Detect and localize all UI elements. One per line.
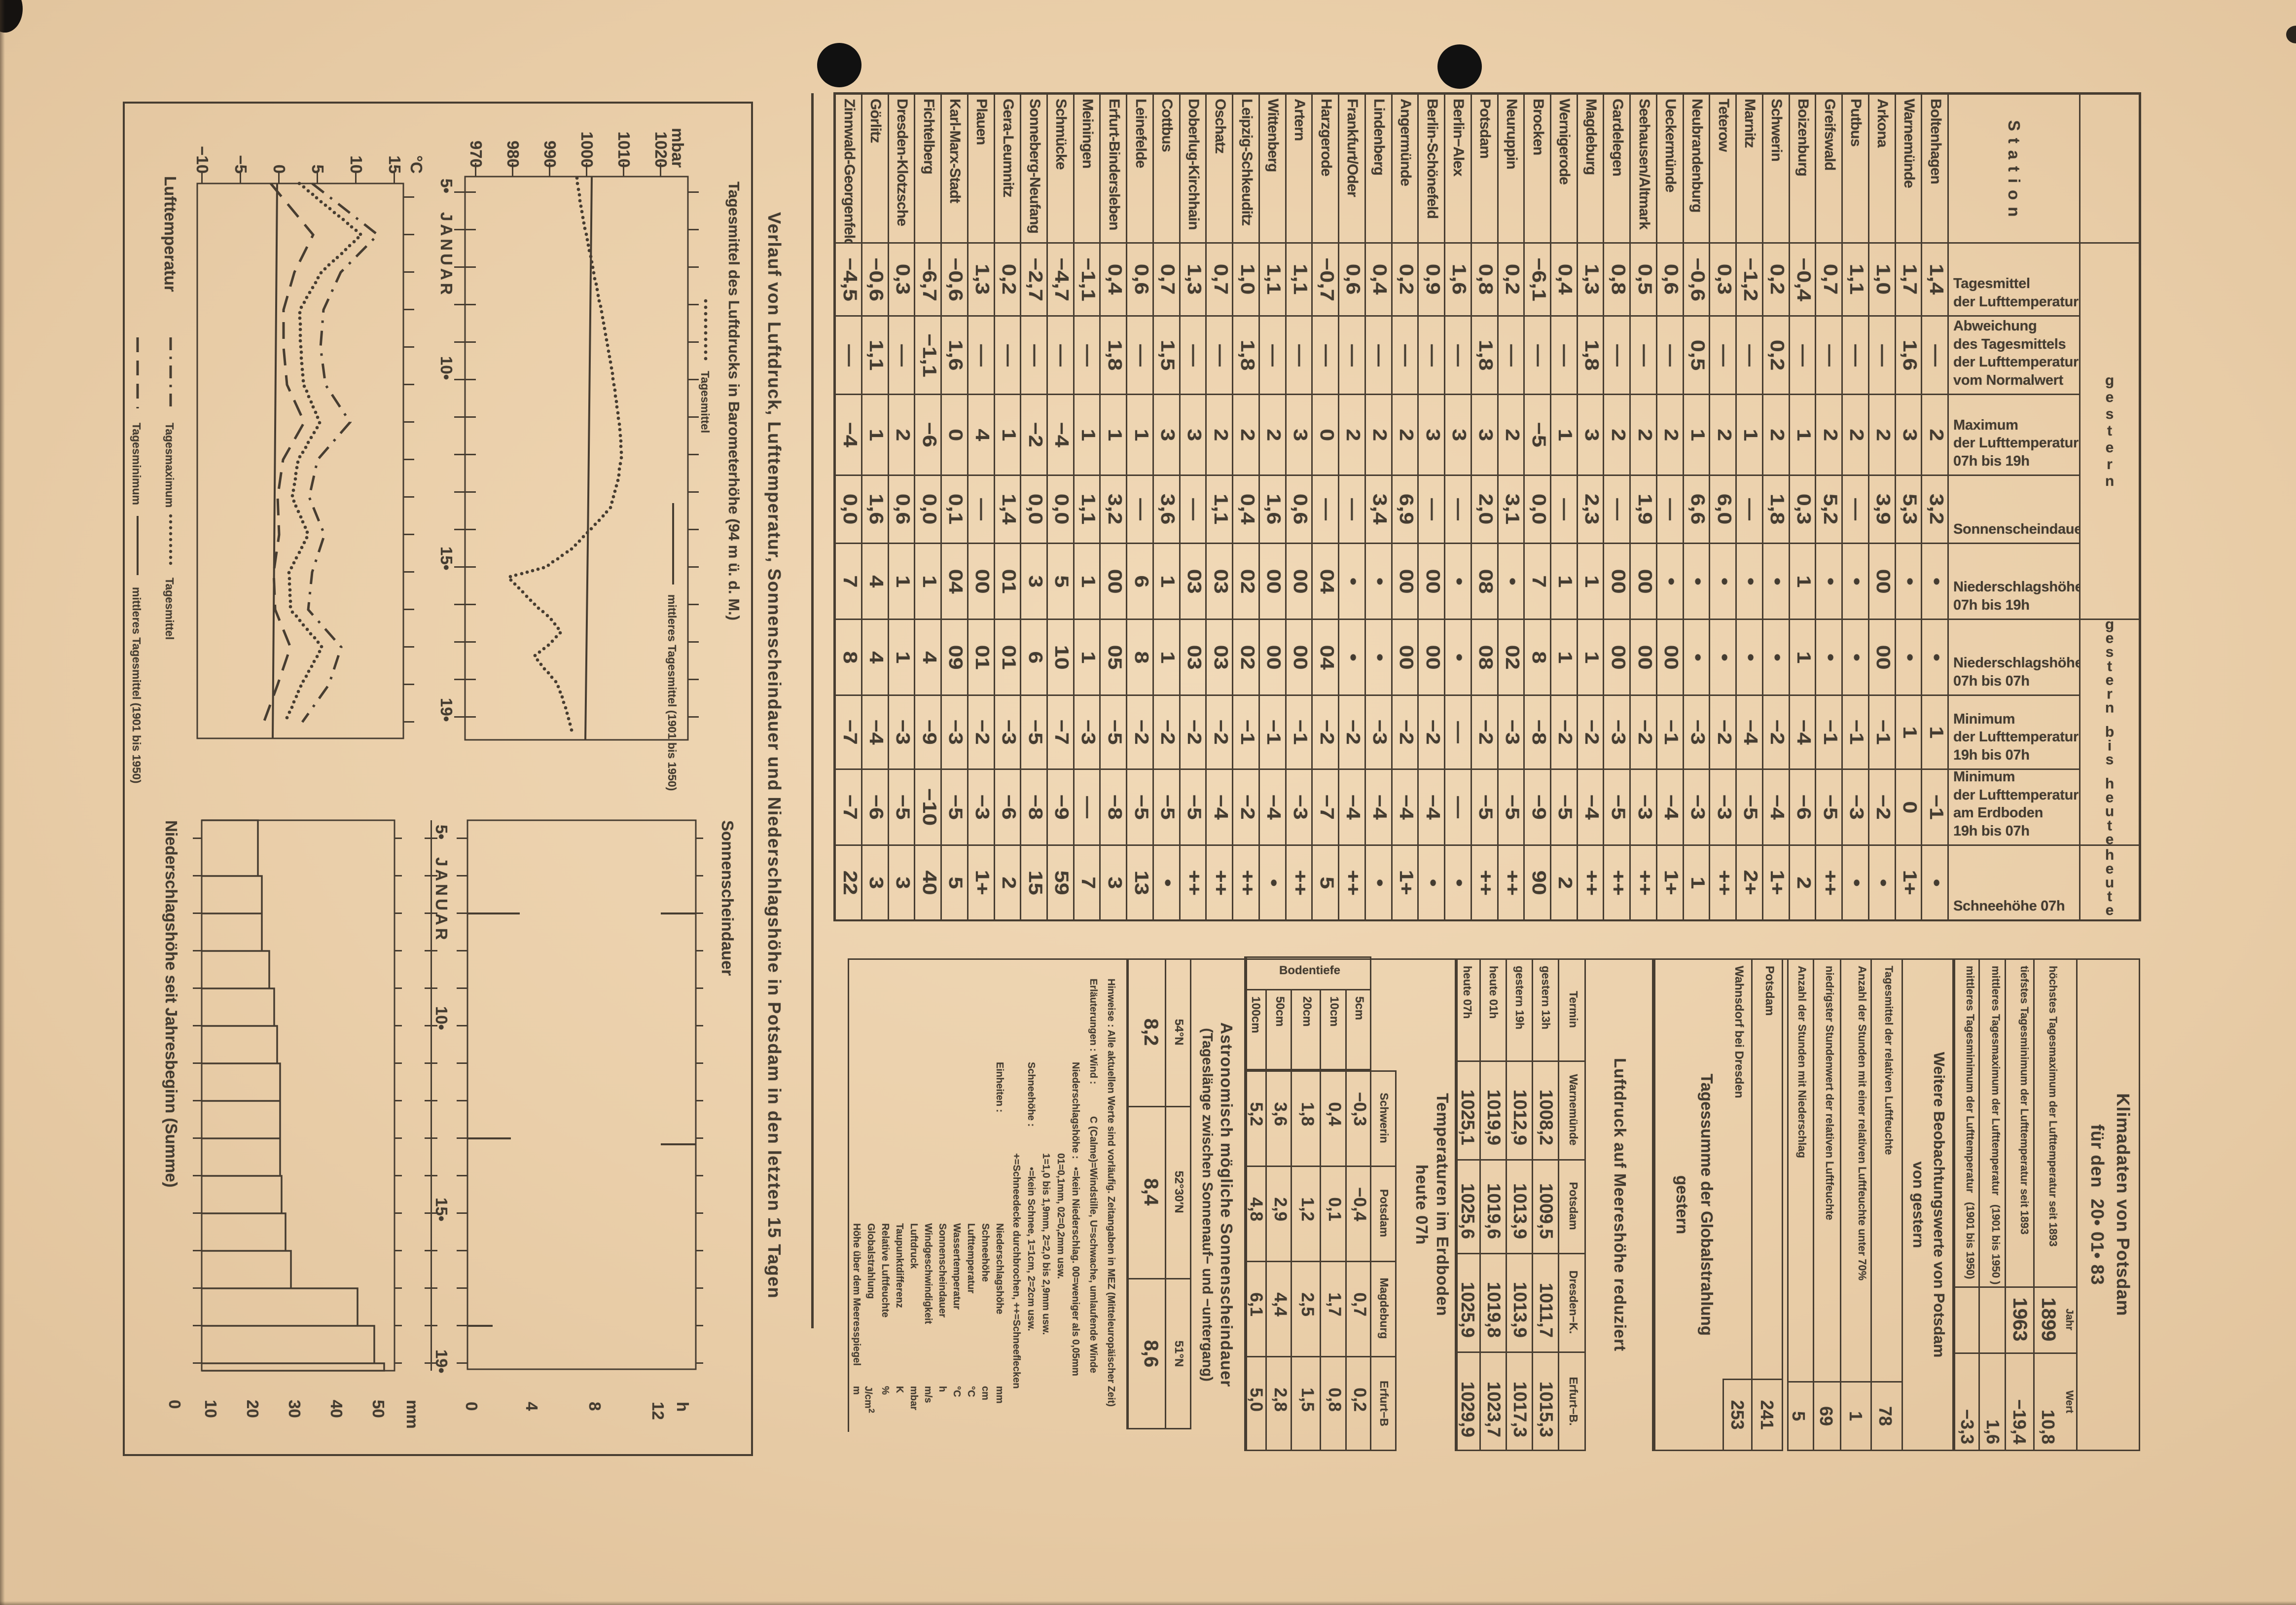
svg-text:4: 4	[523, 1402, 541, 1411]
svg-text:5•: 5•	[437, 179, 456, 193]
svg-text:19•: 19•	[437, 698, 456, 722]
svg-text:JANUAR: JANUAR	[432, 857, 451, 943]
svg-text:10•: 10•	[437, 356, 456, 380]
svg-text:15•: 15•	[432, 1198, 451, 1221]
svg-text:Lufttemperatur: Lufttemperatur	[161, 176, 179, 292]
svg-text:mbar: mbar	[669, 128, 687, 168]
svg-text:Tagesmittel des Luftdrucks in: Tagesmittel des Luftdrucks in Barometerh…	[725, 182, 743, 620]
svg-text:15•: 15•	[437, 547, 456, 570]
svg-text:1010: 1010	[615, 132, 633, 168]
svg-text:30: 30	[286, 1400, 304, 1418]
svg-text:°C: °C	[407, 155, 426, 174]
svg-text:Niederschlagshöhe seit Jahresb: Niederschlagshöhe seit Jahresbeginn (Sum…	[162, 820, 180, 1188]
svg-text:mittleres Tagesmittel (1901 bi: mittleres Tagesmittel (1901 bis 1950)	[666, 594, 679, 791]
svg-text:10: 10	[202, 1400, 220, 1418]
svg-text:mm: mm	[403, 1400, 422, 1429]
svg-text:40: 40	[327, 1400, 346, 1418]
svg-text:20: 20	[244, 1400, 262, 1418]
svg-text:8: 8	[586, 1402, 604, 1411]
svg-text:50: 50	[369, 1400, 388, 1418]
svg-text:−10: −10	[193, 146, 212, 174]
svg-text:h: h	[674, 1402, 692, 1412]
svg-text:19•: 19•	[432, 1350, 451, 1373]
svg-text:12: 12	[649, 1402, 667, 1420]
svg-text:1020: 1020	[652, 132, 670, 168]
svg-text:10•: 10•	[432, 1006, 451, 1030]
svg-text:Verlauf von Luftdruck, Lufttem: Verlauf von Luftdruck, Lufttemperatur, S…	[764, 212, 785, 1299]
svg-text:Tagesmaximum: Tagesmaximum	[163, 423, 176, 508]
svg-text:5•: 5•	[432, 825, 451, 839]
svg-text:1000: 1000	[578, 132, 596, 168]
svg-text:Tagesmittel: Tagesmittel	[699, 371, 712, 433]
svg-text:mittleres Tagesmittel (1901 bi: mittleres Tagesmittel (1901 bis 1950)	[130, 587, 143, 783]
svg-text:Tagesmittel: Tagesmittel	[163, 578, 176, 640]
svg-text:Sonnenscheindauer: Sonnenscheindauer	[718, 820, 737, 976]
svg-text:0: 0	[463, 1402, 481, 1411]
svg-text:JANUAR: JANUAR	[437, 212, 456, 298]
svg-text:0: 0	[166, 1400, 184, 1409]
svg-text:Tagesminimum: Tagesminimum	[130, 423, 143, 505]
